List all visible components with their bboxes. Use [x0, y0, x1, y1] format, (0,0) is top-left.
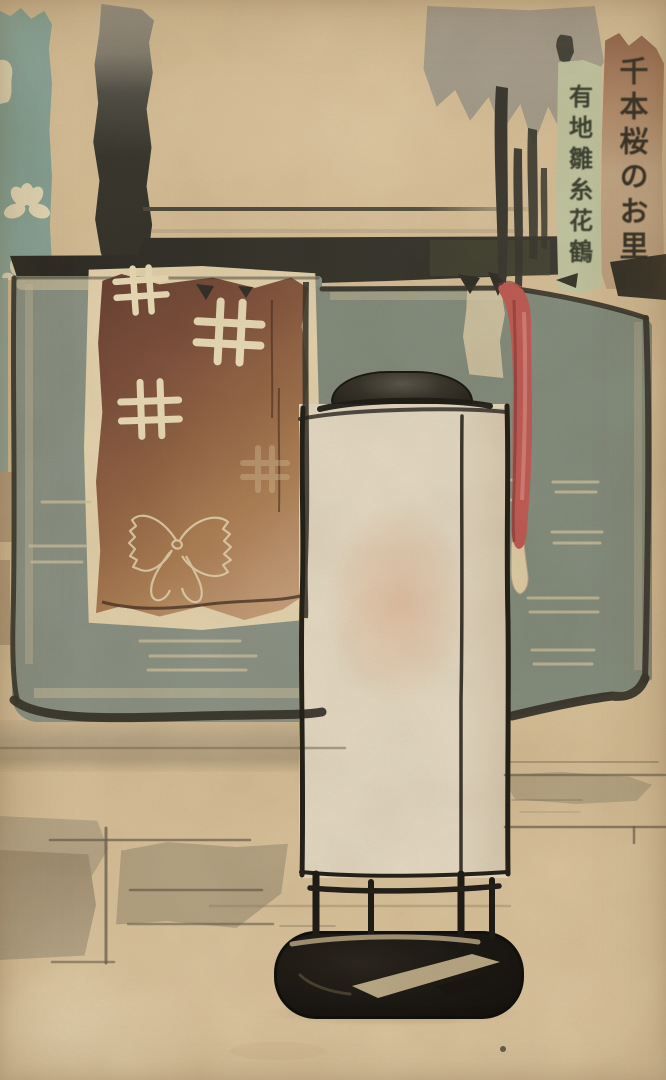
artwork-canvas: 千本桜のお里 有地雛糸花鶴 [0, 0, 666, 1080]
paper-vignette [0, 0, 666, 1080]
